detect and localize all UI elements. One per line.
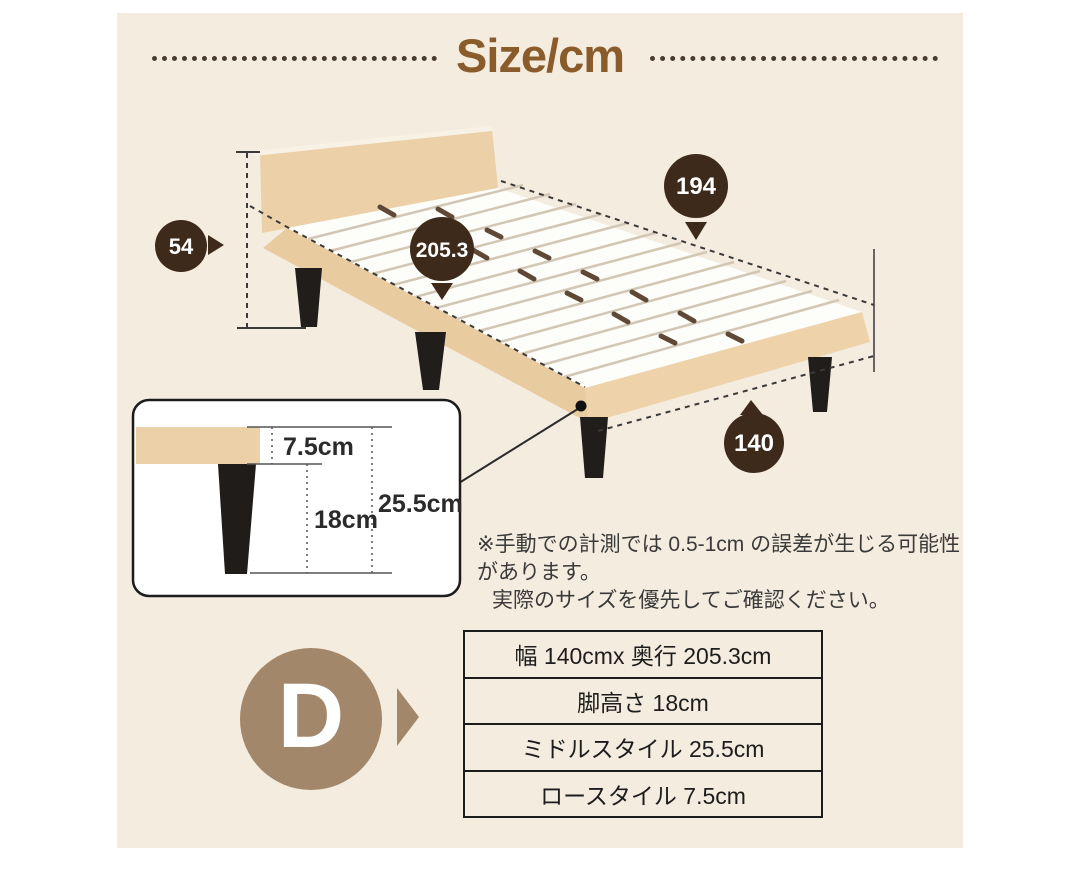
spec-row-middle-style: ミドルスタイル 25.5cm bbox=[465, 723, 821, 770]
badge-value-140: 140 bbox=[734, 430, 774, 457]
badge-value-54: 54 bbox=[169, 234, 194, 259]
inset-total-height-label: 25.5cm bbox=[378, 490, 463, 518]
bed-leg bbox=[415, 332, 446, 390]
dimension-badge-54: 54 bbox=[155, 220, 224, 272]
inset-frame-piece bbox=[136, 427, 260, 464]
badge-value-205: 205.3 bbox=[416, 239, 469, 262]
dimension-badge-140: 140 bbox=[724, 400, 784, 473]
spec-table: 幅 140cmx 奥行 205.3cm 脚高さ 18cm ミドルスタイル 25.… bbox=[463, 630, 823, 818]
badge-value-194: 194 bbox=[676, 173, 717, 200]
size-class-arrow-icon bbox=[397, 688, 419, 746]
measurement-note: ※手動での計測では 0.5-1cm の誤差が生じる可能性があります。 実際のサイ… bbox=[477, 531, 977, 615]
bed-leg bbox=[295, 268, 322, 327]
spec-row-leg-height: 脚高さ 18cm bbox=[465, 677, 821, 724]
spec-row-low-style: ロースタイル 7.5cm bbox=[465, 770, 821, 817]
inset-leg-height-label: 18cm bbox=[314, 506, 378, 534]
size-class-badge: D bbox=[240, 648, 382, 790]
size-diagram-page: Size/cm bbox=[0, 0, 1080, 873]
inset-pointer-line bbox=[459, 407, 581, 483]
dimension-badge-194: 194 bbox=[664, 154, 728, 240]
inset-frame-thickness-label: 7.5cm bbox=[283, 433, 354, 461]
measurement-note-line2: 実際のサイズを優先してご確認ください。 bbox=[477, 587, 977, 615]
bed-leg bbox=[808, 357, 832, 412]
size-class-letter: D bbox=[278, 670, 344, 768]
inset-pointer-dot bbox=[576, 401, 587, 412]
measurement-note-line1: ※手動での計測では 0.5-1cm の誤差が生じる可能性があります。 bbox=[477, 531, 977, 587]
bed-leg bbox=[580, 417, 608, 478]
spec-row-size: 幅 140cmx 奥行 205.3cm bbox=[465, 632, 821, 677]
